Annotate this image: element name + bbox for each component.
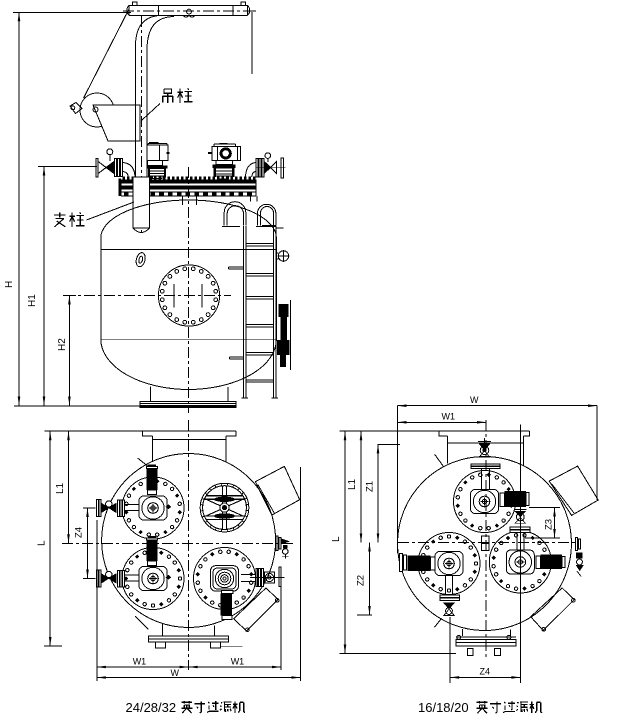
svg-text:Z1: Z1 [365,481,376,492]
svg-text:L: L [331,536,342,542]
svg-text:Z3: Z3 [544,519,555,530]
svg-text:Z4: Z4 [74,527,85,538]
svg-text:Z4: Z4 [480,667,491,677]
svg-text:H1: H1 [27,294,38,307]
svg-text:L1: L1 [55,482,66,494]
svg-text:W: W [470,395,479,405]
svg-text:W1: W1 [442,412,456,422]
svg-text:H: H [4,281,15,288]
svg-text:16/18/20: 16/18/20 [418,700,469,715]
svg-text:W1: W1 [133,657,147,667]
svg-text:24/28/32: 24/28/32 [126,700,177,715]
svg-text:H2: H2 [57,338,68,351]
svg-text:Z2: Z2 [356,575,367,586]
svg-text:W: W [171,668,180,678]
svg-text:L: L [37,540,48,546]
svg-text:L1: L1 [347,478,358,490]
svg-text:W1: W1 [231,657,245,667]
